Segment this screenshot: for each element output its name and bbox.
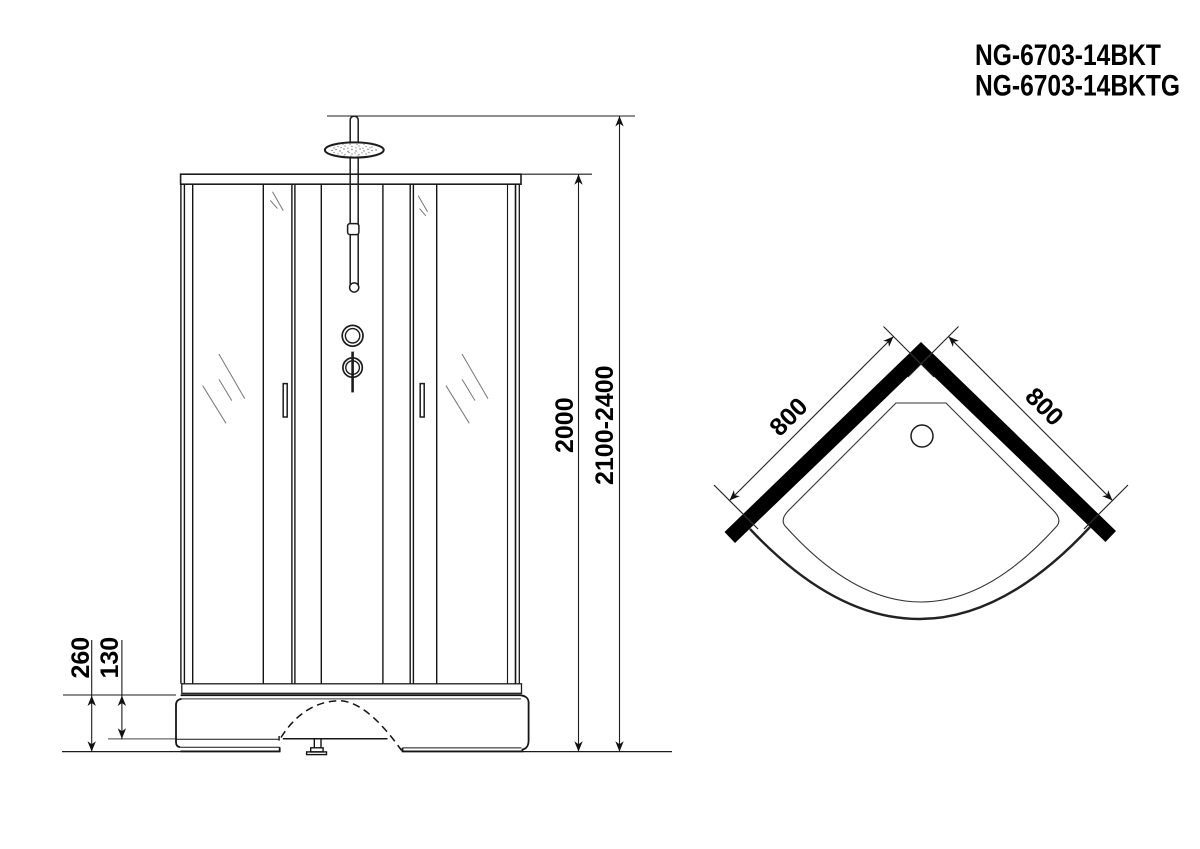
svg-text:260: 260 (67, 637, 95, 679)
svg-text:NG-6703-14BKT: NG-6703-14BKT (975, 38, 1161, 72)
svg-text:2100-2400: 2100-2400 (591, 365, 619, 485)
svg-text:800: 800 (1020, 382, 1069, 431)
svg-text:NG-6703-14BKTG: NG-6703-14BKTG (975, 68, 1180, 102)
svg-text:130: 130 (96, 637, 124, 679)
svg-text:800: 800 (764, 392, 813, 441)
svg-text:2000: 2000 (551, 397, 579, 453)
